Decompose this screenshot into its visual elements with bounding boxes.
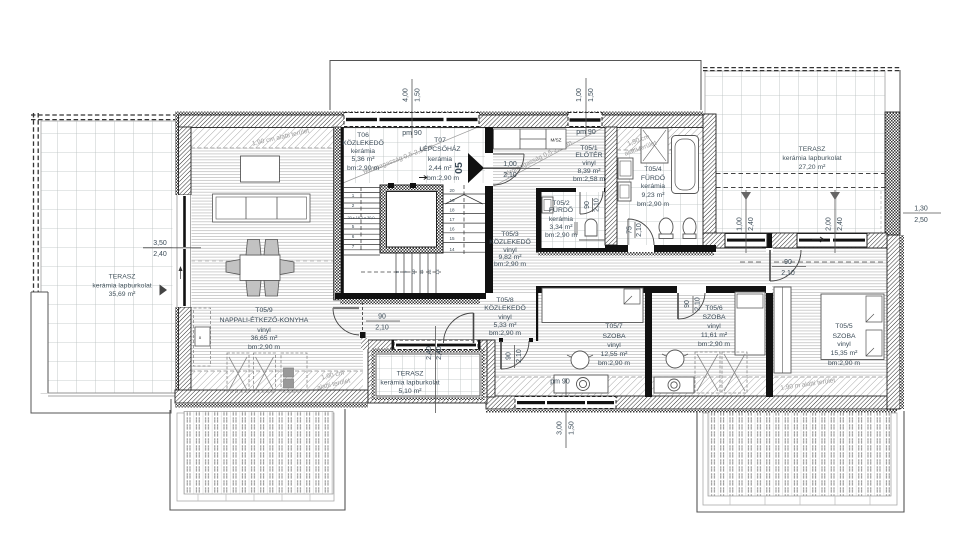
svg-text:T05/7: T05/7 — [605, 323, 623, 330]
svg-text:90: 90 — [506, 352, 513, 360]
svg-text:6: 6 — [352, 234, 355, 239]
svg-text:3,34 m²: 3,34 m² — [549, 224, 573, 231]
svg-text:3,00: 3,00 — [557, 421, 564, 435]
svg-text:M/SZ: M/SZ — [551, 138, 562, 143]
svg-text:bm:2,90 m: bm:2,90 m — [598, 360, 630, 367]
svg-text:bm:2,90 m: bm:2,90 m — [489, 330, 521, 337]
svg-text:10: 10 — [411, 269, 416, 275]
svg-text:1,00: 1,00 — [576, 88, 583, 102]
svg-text:bm:2,90 m: bm:2,90 m — [545, 232, 577, 239]
svg-text:12: 12 — [427, 269, 432, 275]
svg-text:2,44 m²: 2,44 m² — [428, 165, 452, 172]
svg-text:19: 19 — [449, 198, 455, 203]
svg-text:1,50: 1,50 — [588, 88, 595, 102]
svg-text:35,69 m²: 35,69 m² — [109, 291, 137, 298]
svg-text:pm 90: pm 90 — [402, 130, 422, 137]
svg-text:vinyl: vinyl — [707, 323, 721, 330]
svg-text:KÖZLEKEDŐ: KÖZLEKEDŐ — [489, 237, 531, 246]
svg-text:kerámia lapburkolat: kerámia lapburkolat — [380, 380, 439, 387]
svg-text:T05/4: T05/4 — [644, 166, 662, 173]
svg-text:2,40: 2,40 — [748, 217, 755, 231]
svg-text:bm:2,90 m: bm:2,90 m — [828, 360, 860, 367]
svg-text:TERASZ: TERASZ — [397, 371, 424, 378]
svg-text:FÜRDŐ: FÜRDŐ — [549, 205, 573, 214]
svg-text:9,23 m²: 9,23 m² — [641, 192, 665, 199]
svg-text:bm:2,90 m: bm:2,90 m — [248, 344, 280, 351]
svg-text:T07: T07 — [434, 137, 446, 144]
svg-text:kerámia: kerámia — [428, 156, 452, 163]
svg-text:1,00: 1,00 — [503, 161, 517, 168]
svg-text:9,82 m²: 9,82 m² — [498, 254, 522, 261]
svg-text:TERASZ: TERASZ — [109, 274, 136, 281]
svg-text:2,10: 2,10 — [594, 198, 601, 212]
svg-text:FÜRDŐ: FÜRDŐ — [641, 173, 665, 182]
svg-text:KÖZLEKEDŐ: KÖZLEKEDŐ — [342, 138, 384, 147]
svg-text:T05/5: T05/5 — [835, 323, 853, 330]
svg-text:12,55 m²: 12,55 m² — [601, 351, 629, 358]
svg-text:1,30: 1,30 — [914, 206, 928, 213]
svg-text:T06: T06 — [357, 132, 369, 139]
svg-text:90: 90 — [684, 300, 691, 308]
svg-text:4,00: 4,00 — [403, 88, 410, 102]
svg-text:2,10: 2,10 — [503, 172, 517, 179]
svg-text:bm:2,90 m: bm:2,90 m — [698, 341, 730, 348]
svg-text:13: 13 — [435, 269, 440, 275]
svg-text:18: 18 — [449, 208, 455, 213]
svg-text:T05/6: T05/6 — [705, 305, 723, 312]
svg-text:vinyl: vinyl — [582, 160, 596, 167]
svg-text:1,50: 1,50 — [569, 421, 576, 435]
svg-text:vinyl: vinyl — [257, 327, 271, 334]
svg-text:15: 15 — [449, 236, 455, 241]
svg-text:2,40: 2,40 — [436, 346, 443, 360]
svg-text:2: 2 — [352, 203, 355, 208]
svg-text:T05/1: T05/1 — [580, 145, 598, 152]
svg-text:vinyl: vinyl — [837, 341, 851, 348]
svg-text:KÖZLEKEDŐ: KÖZLEKEDŐ — [484, 303, 526, 312]
svg-text:20: 20 — [449, 188, 455, 193]
svg-text:5: 5 — [352, 224, 355, 229]
svg-text:SZOBA: SZOBA — [832, 333, 856, 340]
svg-text:2,40: 2,40 — [837, 217, 844, 231]
svg-text:pm 90: pm 90 — [576, 129, 596, 136]
svg-text:bm:2,90 m: bm:2,90 m — [494, 261, 526, 268]
svg-text:vinyl: vinyl — [498, 314, 512, 321]
svg-text:2,10: 2,10 — [781, 270, 795, 277]
svg-text:5,36 m²: 5,36 m² — [351, 156, 375, 163]
svg-text:16: 16 — [449, 227, 455, 232]
svg-text:kerámia lapburkolat: kerámia lapburkolat — [92, 283, 151, 290]
svg-text:2,10: 2,10 — [695, 297, 702, 311]
svg-text:TERASZ: TERASZ — [799, 146, 826, 153]
svg-text:90: 90 — [378, 314, 386, 321]
svg-text:bm:2,58 m: bm:2,58 m — [573, 176, 605, 183]
svg-text:bm:2,90 m: bm:2,90 m — [427, 175, 459, 182]
svg-text:kerámia: kerámia — [351, 148, 375, 155]
svg-text:11: 11 — [419, 269, 424, 274]
svg-text:7: 7 — [352, 244, 355, 249]
svg-text:SZOBA: SZOBA — [702, 314, 726, 321]
svg-text:2,40: 2,40 — [153, 251, 167, 258]
svg-text:5,10 m²: 5,10 m² — [398, 388, 422, 395]
svg-text:SZOBA: SZOBA — [602, 333, 626, 340]
svg-text:2,50: 2,50 — [914, 217, 928, 224]
svg-text:kerámia lapburkolat: kerámia lapburkolat — [782, 155, 841, 162]
svg-text:pm 90: pm 90 — [550, 379, 570, 386]
svg-text:bm:2,90 m: bm:2,90 m — [637, 201, 669, 208]
svg-text:1,00: 1,00 — [737, 217, 744, 231]
svg-text:5,33 m²: 5,33 m² — [493, 322, 517, 329]
svg-text:20 x 16,1 x 30,0: 20 x 16,1 x 30,0 — [347, 216, 374, 220]
svg-text:8,39 m²: 8,39 m² — [577, 168, 601, 175]
svg-text:2,10: 2,10 — [636, 223, 643, 237]
svg-text:15,35 m²: 15,35 m² — [831, 350, 859, 357]
svg-text:T05/2: T05/2 — [552, 200, 570, 207]
svg-text:90: 90 — [784, 259, 792, 266]
svg-text:11,61 m²: 11,61 m² — [701, 332, 728, 339]
svg-text:36,65 m²: 36,65 m² — [251, 335, 279, 342]
svg-text:T05/8: T05/8 — [496, 297, 514, 304]
svg-text:T05/9: T05/9 — [255, 307, 273, 314]
svg-text:05: 05 — [453, 162, 465, 174]
svg-text:27,20 m²: 27,20 m² — [799, 164, 827, 171]
svg-text:3,50: 3,50 — [153, 240, 167, 247]
svg-text:kerámia: kerámia — [641, 183, 665, 190]
svg-text:vinyl: vinyl — [607, 342, 621, 349]
svg-text:2,00: 2,00 — [826, 217, 833, 231]
svg-text:17: 17 — [449, 217, 455, 222]
svg-text:2,10: 2,10 — [516, 349, 523, 363]
svg-text:75: 75 — [627, 226, 634, 234]
svg-text:bm:2,90 m: bm:2,90 m — [347, 165, 379, 172]
svg-text:1: 1 — [352, 193, 355, 198]
svg-text:T05/3: T05/3 — [501, 231, 519, 238]
svg-text:1,50: 1,50 — [415, 88, 422, 102]
svg-text:14: 14 — [449, 247, 455, 252]
svg-text:8: 8 — [395, 270, 400, 273]
svg-text:NAPPALI-ÉTKEZŐ-KONYHA: NAPPALI-ÉTKEZŐ-KONYHA — [220, 315, 309, 324]
svg-text:LÉPCSŐHÁZ: LÉPCSŐHÁZ — [419, 144, 460, 153]
svg-text:kerámia: kerámia — [549, 216, 573, 223]
svg-text:9: 9 — [403, 270, 408, 273]
svg-text:ELŐTÉR: ELŐTÉR — [575, 150, 602, 159]
svg-text:2,10: 2,10 — [375, 325, 389, 332]
svg-text:90: 90 — [584, 201, 591, 209]
svg-text:vinyl: vinyl — [503, 247, 517, 254]
svg-text:2,40: 2,40 — [426, 346, 433, 360]
